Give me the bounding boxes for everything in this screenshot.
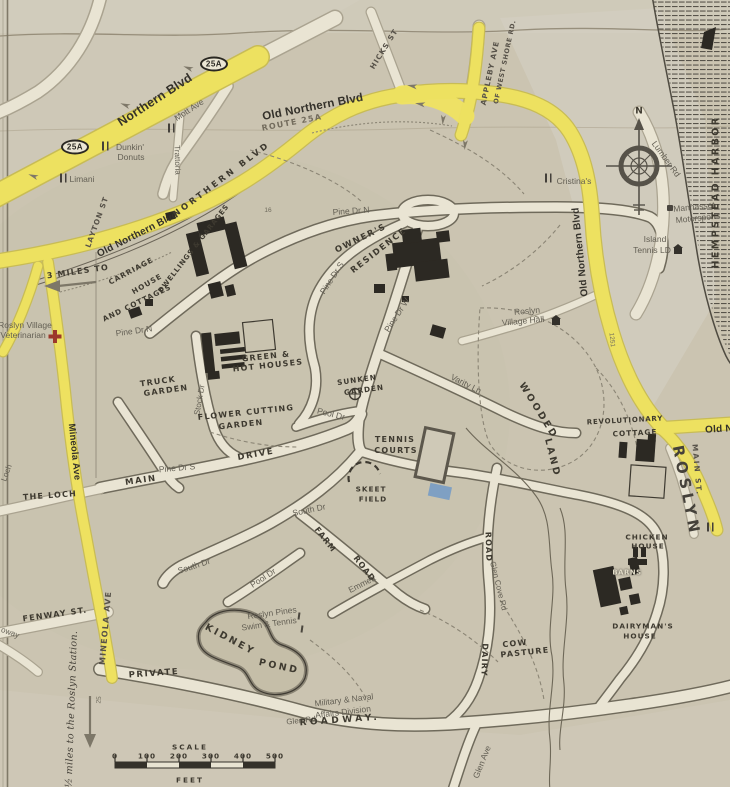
scale-tick-0: 0	[112, 752, 118, 759]
label-island-tennis-1: Island	[644, 235, 667, 244]
label-chicken-house-1: CHICKEN	[625, 533, 668, 540]
estate-map: Northern Blvd 25A 25A Old Northern Blvd …	[0, 0, 730, 787]
label-skeet-field-1: SKEET	[356, 485, 387, 492]
label-old-northern-partial: Old N	[705, 424, 730, 435]
label-cristinas: Cristina's	[557, 177, 592, 186]
label-trattoria: Trattoria	[172, 145, 181, 175]
label-dunkin-donuts-2: Donuts	[118, 153, 145, 162]
label-limani: Limani	[69, 175, 94, 184]
scale-tick-200: 200	[170, 752, 188, 759]
restaurant-icon-roslyn	[707, 523, 715, 532]
route-shield-25a-sw: 25A	[61, 140, 89, 155]
building-icon-motorsports	[667, 205, 673, 211]
label-route-25: 25	[96, 696, 103, 704]
label-house-number: 16	[264, 208, 271, 215]
label-compass-north: N	[635, 108, 643, 117]
label-revolutionary-cottage-2: COTTAGE	[612, 428, 657, 438]
scale-tick-400: 400	[234, 752, 252, 759]
label-pole-number: 1251	[607, 332, 615, 347]
restaurant-icon-dunkin	[102, 142, 110, 151]
scale-tick-100: 100	[138, 752, 156, 759]
label-tennis-courts-1: TENNIS	[375, 436, 415, 444]
label-dairymans-house-1: DAIRYMAN'S	[612, 622, 673, 629]
label-dairymans-house-2: HOUSE	[623, 632, 656, 639]
label-island-tennis-2: Tennis LD	[633, 246, 671, 255]
label-tennis-courts-2: COURTS	[374, 447, 417, 455]
restaurant-icon-limani	[60, 174, 68, 183]
scale-unit: FEET	[176, 776, 204, 783]
restaurant-icon-cristinas	[545, 174, 553, 183]
route-shield-25a-ne: 25A	[200, 57, 228, 72]
scale-tick-300: 300	[202, 752, 220, 759]
building-icon-village-hall	[552, 319, 560, 325]
scale-title: SCALE	[172, 743, 208, 750]
restaurant-icon-trattoria	[168, 124, 176, 133]
label-dairy-road-1: ROAD	[483, 532, 492, 563]
label-veterinarian-1: Roslyn Village	[0, 321, 52, 330]
label-hempstead-harbor: HEMPSTEAD HARBOR	[711, 116, 721, 269]
label-dairy-road-2: DAIRY	[479, 643, 488, 677]
label-chicken-house-2: HOUSE	[631, 542, 664, 549]
label-barns: BARNS	[612, 570, 641, 577]
building-icon-island-tennis	[674, 248, 682, 254]
label-veterinarian-2: Veterinarian	[0, 331, 45, 340]
label-skeet-field-2: FIELD	[359, 495, 387, 502]
label-dunkin-donuts-1: Dunkin'	[116, 143, 144, 152]
scale-tick-500: 500	[266, 752, 284, 759]
